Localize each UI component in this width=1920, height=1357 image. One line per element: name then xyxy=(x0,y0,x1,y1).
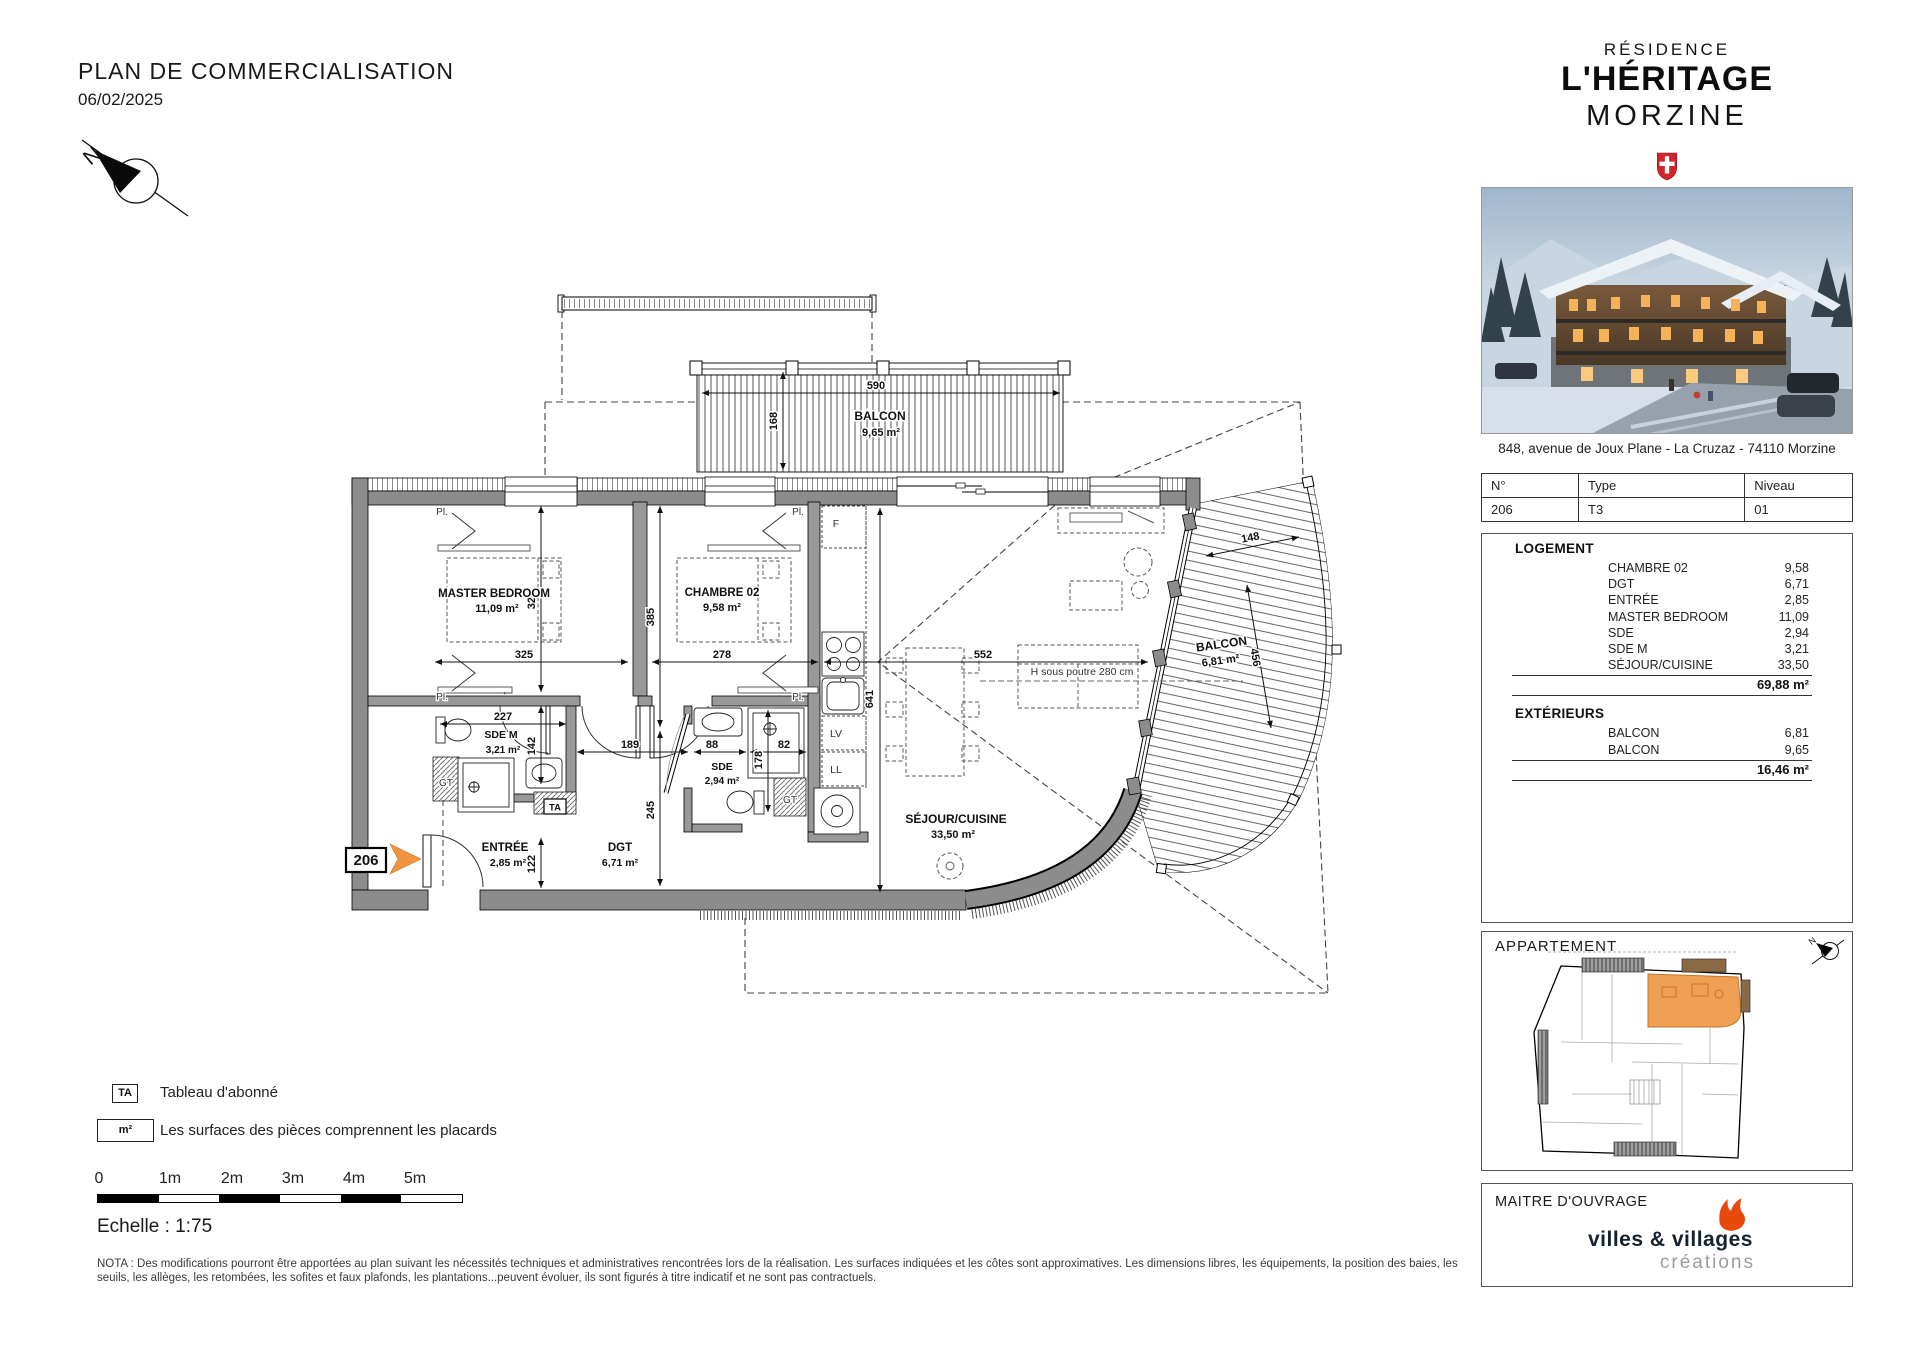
plan-date: 06/02/2025 xyxy=(78,90,163,110)
room-label-dgt: DGT xyxy=(608,842,632,854)
scale-tick-1m: 1m xyxy=(159,1170,181,1188)
ta-tag: TA xyxy=(549,803,561,814)
placard-tag-2: Pl. xyxy=(792,507,804,518)
dim-590: 590 xyxy=(867,380,885,392)
placard-tag-4: Pl. xyxy=(792,692,804,703)
surface-row: SDE2,94 xyxy=(1608,625,1809,641)
room-label-sde: SDE xyxy=(711,761,733,773)
furniture xyxy=(447,508,1164,879)
scale-tick-2m: 2m xyxy=(221,1170,243,1188)
unit-level: 01 xyxy=(1745,498,1853,522)
washer-tag: LL xyxy=(830,764,842,776)
surface-row: BALCON9,65 xyxy=(1608,742,1809,758)
unit-info-table: N° Type Niveau 206 T3 01 xyxy=(1481,473,1853,522)
compass-north-label: N xyxy=(79,142,105,169)
room-label-chambre02: CHAMBRE 02 xyxy=(685,587,760,599)
dim-142: 142 xyxy=(526,737,538,755)
fridge-tag: F xyxy=(833,518,839,530)
legend-ta-text: Tableau d'abonné xyxy=(160,1084,278,1101)
surface-row: ENTRÉE2,85 xyxy=(1608,592,1809,608)
dim-82: 82 xyxy=(778,739,790,751)
unit-marker-number: 206 xyxy=(353,852,378,869)
scale-tick-4m: 4m xyxy=(343,1170,365,1188)
surface-row: MASTER BEDROOM11,09 xyxy=(1608,609,1809,625)
developer-name: villes & villages xyxy=(1588,1228,1753,1252)
scale-bar xyxy=(97,1194,463,1203)
legend-m2-text: Les surfaces des pièces comprennent les … xyxy=(160,1122,497,1139)
nota-text: NOTA : Des modifications pourront être a… xyxy=(97,1258,1477,1285)
balcony-right-deck xyxy=(1135,476,1341,874)
room-area-sde: 2,94 m² xyxy=(705,776,740,787)
gt-tag-2: GT xyxy=(783,795,797,806)
dim-325: 325 xyxy=(515,649,533,661)
scale-tick-3m: 3m xyxy=(282,1170,304,1188)
brand-heritage: L'HÉRITAGE xyxy=(1481,60,1853,99)
room-area-dgt: 6,71 m² xyxy=(602,857,639,869)
brand-residence: RÉSIDENCE xyxy=(1481,40,1853,60)
room-area-sde-m: 3,21 m² xyxy=(486,745,521,756)
flame-logo-icon xyxy=(1710,1196,1752,1232)
dim-278: 278 xyxy=(713,649,731,661)
surface-row: BALCON6,81 xyxy=(1608,725,1809,741)
maitre-ouvrage-title: MAITRE D'OUVRAGE xyxy=(1495,1194,1648,1210)
surfaces-panel: LOGEMENT CHAMBRE 029,58 DGT6,71 ENTRÉE2,… xyxy=(1481,533,1853,923)
room-label-balcon-top: BALCON xyxy=(854,409,905,423)
surface-row: DGT6,71 xyxy=(1608,576,1809,592)
building-key-plan: N xyxy=(1482,932,1852,1169)
maitre-ouvrage-panel: MAITRE D'OUVRAGE villes & villages créat… xyxy=(1481,1183,1853,1287)
dim-88: 88 xyxy=(706,739,718,751)
svg-text:N: N xyxy=(1807,935,1818,947)
dim-122: 122 xyxy=(526,855,538,873)
appartement-panel: APPARTEMENT xyxy=(1481,931,1853,1171)
placard-tag-3: Pl. xyxy=(436,692,448,703)
scale-tick-0: 0 xyxy=(95,1170,104,1188)
dim-245: 245 xyxy=(645,801,657,819)
room-area-balcon-top: 9,65 m² xyxy=(862,427,900,439)
scale-tick-5m: 5m xyxy=(404,1170,426,1188)
address: 848, avenue de Joux Plane - La Cruzaz - … xyxy=(1481,441,1853,456)
dishwasher-tag: LV xyxy=(830,728,842,740)
room-area-entree: 2,85 m² xyxy=(490,857,527,869)
dim-385: 385 xyxy=(645,608,657,626)
logement-total: 69,88 m² xyxy=(1482,676,1852,693)
surface-row: SÉJOUR/CUISINE33,50 xyxy=(1608,657,1809,673)
brand-morzine: MORZINE xyxy=(1481,100,1853,133)
page-title: PLAN DE COMMERCIALISATION xyxy=(78,58,454,85)
logement-title: LOGEMENT xyxy=(1515,541,1852,556)
savoie-cross-icon xyxy=(1655,152,1679,181)
room-label-sde-m: SDE M xyxy=(484,729,518,741)
dim-189: 189 xyxy=(621,739,639,751)
gt-tag-1: GT xyxy=(439,778,453,789)
dim-168: 168 xyxy=(768,412,780,430)
room-area-master: 11,09 m² xyxy=(475,603,519,615)
surface-row: CHAMBRE 029,58 xyxy=(1608,560,1809,576)
north-compass-icon: N xyxy=(70,126,200,221)
legend-ta-symbol: TA xyxy=(112,1084,138,1103)
dim-178: 178 xyxy=(753,751,765,769)
room-area-sejour: 33,50 m² xyxy=(931,829,975,841)
room-label-sejour: SÉJOUR/CUISINE xyxy=(905,811,1006,826)
dim-641: 641 xyxy=(864,690,876,708)
unit-table-header-numero: N° xyxy=(1482,474,1579,498)
legend-m2-symbol: m² xyxy=(97,1119,154,1142)
direction-arrow-icon: ← xyxy=(501,684,513,698)
unit-number: 206 xyxy=(1482,498,1579,522)
placard-tag-1: Pl. xyxy=(436,507,448,518)
scale-text: Echelle : 1:75 xyxy=(97,1216,212,1238)
room-label-master: MASTER BEDROOM xyxy=(438,588,550,600)
unit-table-header-type: Type xyxy=(1579,474,1745,498)
exterieurs-title: EXTÉRIEURS xyxy=(1515,706,1852,721)
page: PLAN DE COMMERCIALISATION 06/02/2025 N xyxy=(0,0,1920,1357)
developer-sub: créations xyxy=(1588,1252,1755,1274)
highlighted-unit xyxy=(1648,974,1741,1027)
upper-beam xyxy=(558,295,876,312)
mini-compass-icon: N xyxy=(1807,935,1844,964)
beam-note: H sous poutre 280 cm xyxy=(1031,666,1134,678)
unit-marker-arrow-icon xyxy=(390,844,421,874)
room-area-chambre02: 9,58 m² xyxy=(703,602,741,614)
room-label-entree: ENTRÉE xyxy=(482,841,529,854)
residence-photo xyxy=(1481,187,1853,434)
floor-plan: 590 168 325 278 552 385 245 320 142 122 … xyxy=(330,285,1430,1015)
exterieurs-total: 16,46 m² xyxy=(1482,761,1852,778)
dim-227: 227 xyxy=(494,711,512,723)
unit-type: T3 xyxy=(1579,498,1745,522)
dim-552: 552 xyxy=(974,649,992,661)
unit-marker: 206 xyxy=(346,844,421,874)
unit-table-header-niveau: Niveau xyxy=(1745,474,1853,498)
surface-row: SDE M3,21 xyxy=(1608,641,1809,657)
